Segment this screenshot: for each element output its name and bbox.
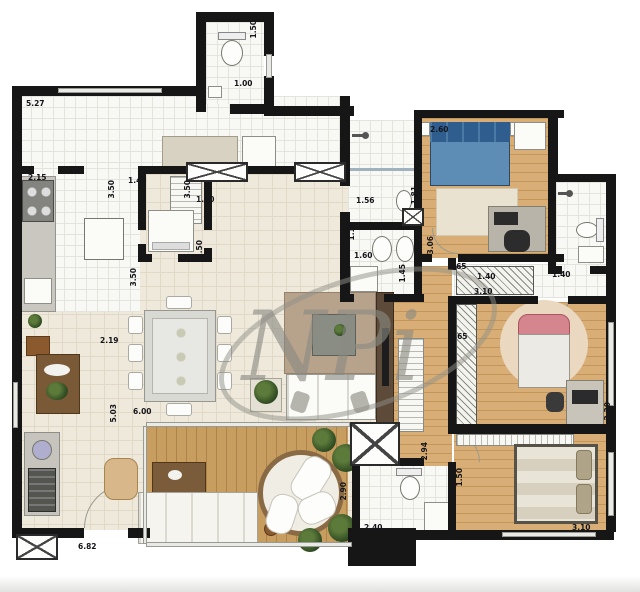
dimension-label: 1.50: [196, 240, 204, 259]
window: [608, 322, 614, 406]
window: [143, 426, 147, 544]
dimension-label: 1.70: [13, 142, 21, 161]
kitchen-sink: [24, 278, 52, 304]
coffee-table-decor: [168, 470, 182, 480]
stove: [22, 180, 54, 222]
wall-segment: [384, 294, 424, 302]
window: [58, 88, 162, 93]
wall-segment: [548, 110, 558, 182]
fridge: [84, 218, 124, 260]
office-chair: [546, 392, 564, 412]
maid-bed-pillow: [152, 242, 190, 250]
counter-basket: [26, 336, 50, 356]
bathroom-tr-toilet-tank: [596, 218, 604, 242]
dimension-label: 3.50: [130, 268, 138, 287]
hall-closet: [398, 338, 424, 432]
dimension-label: 1.40: [552, 271, 571, 279]
bed-single-pink: [518, 334, 570, 388]
lavabo-toilet: [372, 236, 392, 262]
shower-glass: [350, 168, 414, 171]
bathroom-tr-toilet: [576, 222, 598, 238]
dining-chair: [217, 372, 232, 390]
window: [266, 54, 272, 78]
dining-chair: [128, 372, 143, 390]
floor-plan: NPi 5.271.701.501.002.153.501.403.501.50…: [0, 0, 640, 592]
dining-chair: [217, 316, 232, 334]
bedroom1-closet: [514, 122, 546, 150]
dimension-label: 3.50: [108, 180, 116, 199]
plant: [298, 528, 322, 552]
desk-monitor: [494, 212, 518, 225]
dimension-label: 1.10: [348, 222, 356, 241]
dining-table-top: [152, 318, 208, 394]
dimension-label: 1.45: [399, 264, 407, 283]
dimension-label: 1.50: [456, 468, 464, 487]
wall-segment: [448, 424, 614, 434]
wall-segment: [414, 110, 564, 118]
shaft-box: [16, 534, 58, 560]
dining-chair: [128, 344, 143, 362]
dimension-label: 1.40: [477, 273, 496, 281]
bathroom-tr-vanity: [578, 246, 604, 263]
dimension-label: 5.03: [110, 404, 118, 423]
wall-segment: [414, 254, 432, 262]
dimension-label: 2.94: [421, 442, 429, 461]
window: [502, 532, 596, 537]
plant: [312, 428, 336, 452]
dimension-label: 1.50: [196, 196, 215, 204]
shaft-box: [350, 422, 400, 466]
dining-chair: [166, 296, 192, 309]
dimension-label: 6.82: [78, 543, 97, 551]
wall-segment: [352, 458, 360, 534]
sofa-2: [138, 492, 258, 544]
dimension-label: 2.40: [364, 524, 383, 532]
wall-segment: [58, 166, 84, 174]
wall-segment: [458, 254, 564, 262]
wall-segment: [196, 12, 274, 22]
office-chair: [504, 230, 530, 252]
suite-bed-pillow: [576, 450, 592, 480]
dimension-label: 3.10: [572, 524, 591, 532]
wall-segment: [348, 528, 416, 566]
wall-segment: [138, 254, 152, 262]
dimension-label: 5.27: [26, 100, 45, 108]
nightstand: [421, 122, 430, 136]
suitebath-toilet: [400, 476, 420, 500]
dimension-label: 3.50: [184, 180, 192, 199]
dimension-label: 1.65: [449, 333, 468, 341]
dimension-label: 2.15: [28, 174, 47, 182]
armchair: [104, 458, 138, 500]
shaft-box: [294, 162, 346, 182]
wc-toilet: [221, 40, 243, 66]
wc-toilet-tank: [218, 32, 246, 40]
wall-segment: [448, 296, 538, 304]
window: [608, 452, 614, 516]
dimension-label: 1.50: [250, 20, 258, 39]
wall-segment: [196, 12, 206, 112]
shaft-box: [186, 162, 248, 182]
bed-single-pink-pillow: [518, 314, 570, 336]
buffet-plate: [44, 364, 70, 376]
wall-segment: [606, 174, 616, 274]
coffee-table: [312, 314, 356, 356]
dimension-label: 6.00: [133, 408, 152, 416]
counter-plant: [28, 314, 42, 328]
dining-chair: [128, 316, 143, 334]
dimension-label: 1.56: [356, 197, 375, 205]
shaft-box: [402, 208, 424, 226]
wall-segment: [590, 266, 614, 274]
bar-appliance: [28, 468, 56, 512]
dimension-label: 3.10: [474, 288, 493, 296]
desk-monitor: [572, 390, 598, 404]
window: [146, 422, 350, 427]
dimension-label: 3.06: [427, 236, 435, 255]
suitebath-toilet-tank: [396, 468, 422, 476]
dimension-label: 2.20: [604, 402, 612, 421]
dining-chair: [166, 403, 192, 416]
dimension-label: 1.40: [128, 177, 147, 185]
plant: [254, 380, 278, 404]
dimension-label: 2.19: [100, 337, 119, 345]
lavabo-bidet: [396, 236, 414, 262]
wall-segment: [448, 302, 456, 426]
wc-sink: [208, 86, 222, 98]
tv-screen: [382, 328, 389, 386]
dimension-label: 1.81: [411, 186, 419, 205]
dimension-label: 1.65: [448, 263, 467, 271]
coffee-table-plant: [334, 324, 346, 336]
suite-bed-pillow: [576, 484, 592, 514]
lavabo-vanity: [350, 266, 378, 292]
dimension-label: 1.60: [354, 252, 373, 260]
dimension-label: 2.20: [550, 186, 558, 205]
dimension-label: 2.60: [430, 126, 449, 134]
bar-sink: [32, 440, 52, 460]
showerhead-icon: [566, 190, 573, 197]
wall-segment: [264, 12, 274, 56]
image-edge-shadow: [0, 576, 640, 592]
window: [13, 382, 18, 428]
buffet-plant: [46, 382, 68, 400]
dining-chair: [217, 344, 232, 362]
bedroom2-closet: [456, 304, 477, 426]
showerhead-icon: [362, 132, 369, 139]
dimension-label: 2.90: [340, 482, 348, 501]
wall-segment: [340, 294, 354, 302]
dimension-label: 1.00: [234, 80, 253, 88]
window: [146, 542, 352, 547]
